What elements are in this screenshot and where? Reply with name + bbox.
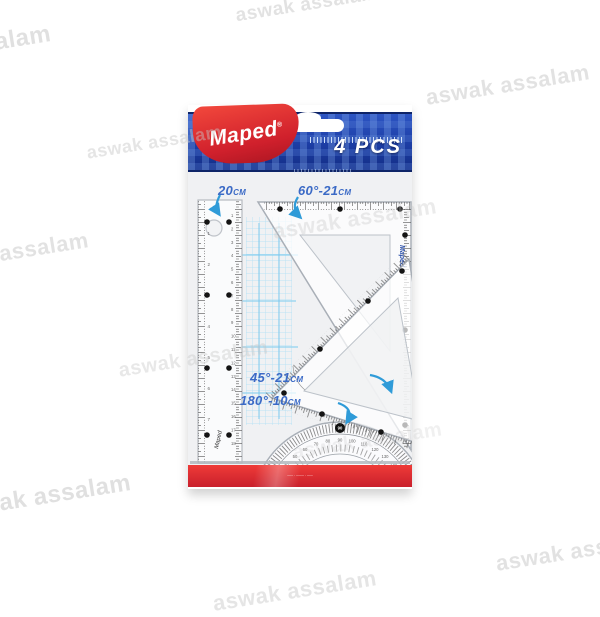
arrow-to-ruler xyxy=(216,195,220,214)
watermark-text: aswak assalam xyxy=(424,59,592,111)
watermark-text: aswak assalam xyxy=(0,469,133,525)
arrow-to-45-square xyxy=(370,375,391,391)
callout-arrows xyxy=(188,105,412,489)
watermark-text: aswak assalam xyxy=(211,565,379,617)
watermark-text: aswak assalam xyxy=(494,525,600,577)
product-photo: { "watermark": { "text": "aswak assalam"… xyxy=(0,0,600,600)
scale-number: 170 xyxy=(405,495,413,500)
scale-number: 10 xyxy=(269,495,274,500)
watermark-text: aswak assalam xyxy=(0,227,91,279)
watermark-text: aswak assalam xyxy=(0,20,53,76)
arrow-to-60-square xyxy=(295,197,300,217)
product-package: Maped® 4 PCS 20CM 60°-21CM 45°-21CM 180°… xyxy=(188,105,412,489)
arrow-to-protractor xyxy=(338,403,350,422)
watermark-text: aswak assalam xyxy=(234,0,380,27)
